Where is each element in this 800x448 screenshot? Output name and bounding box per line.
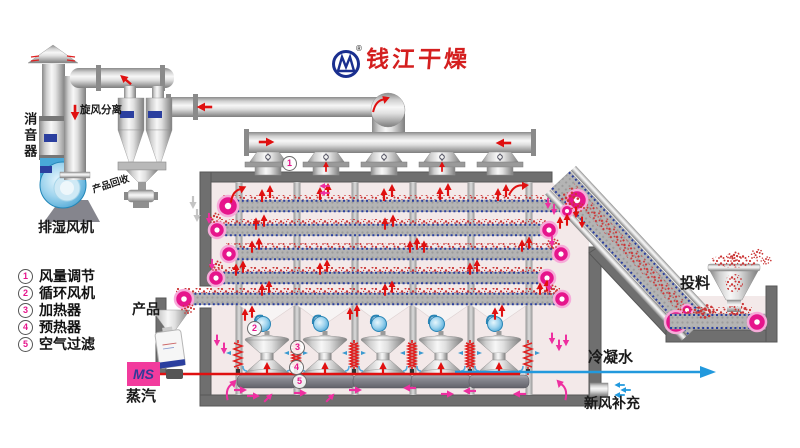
circulation-units	[226, 305, 540, 388]
registered-trademark: ®	[356, 45, 362, 54]
fresh-air-label: 新风补充	[584, 397, 640, 412]
brand-logo-icon	[334, 52, 359, 77]
fresh-air-stub	[590, 383, 608, 396]
brand-logo-text: 钱江干燥	[365, 47, 471, 72]
steam-valve	[166, 369, 183, 379]
belt-4	[214, 267, 548, 284]
condensate-label: 冷凝水	[588, 350, 633, 367]
belt-5	[176, 288, 564, 305]
legend-item-heater: 3 加热器	[18, 302, 95, 318]
conveyor-belts	[175, 194, 588, 308]
silencer-label: 消音器	[22, 112, 36, 160]
legend-num-5: 5	[18, 337, 33, 352]
callout-4: 4	[289, 360, 304, 375]
callout-1: 1	[282, 156, 297, 171]
legend-num-3: 3	[18, 303, 33, 318]
legend-label-5: 空气过滤	[39, 334, 95, 354]
legend-item-air-volume: 1 风量调节	[18, 268, 95, 284]
legend-num-4: 4	[18, 320, 33, 335]
legend-item-preheater: 4 预热器	[18, 319, 95, 335]
callout-2: 2	[247, 321, 262, 336]
legend-num-1: 1	[18, 269, 33, 284]
steam-source-box: MS	[127, 362, 160, 386]
dryer-inlet-pipe	[166, 93, 405, 134]
belt-dryer-schematic: 消音器 排湿风机 旋风分离 产品回收 ® 钱江干燥 投料 产品 MS 蒸汽 冷凝…	[0, 0, 800, 448]
exhaust-fan-label: 排湿风机	[38, 221, 94, 236]
legend-item-air-filter: 5 空气过滤	[18, 336, 95, 352]
cyclone-separator	[118, 86, 172, 208]
cyclone-label: 旋风分离	[80, 105, 122, 117]
steam-label: 蒸汽	[126, 389, 156, 406]
product-recovery-valve	[124, 182, 158, 208]
legend-item-circulation-fan: 2 循环风机	[18, 285, 95, 301]
product-label: 产品	[132, 303, 160, 318]
callout-5: 5	[292, 374, 307, 389]
legend: 1 风量调节 2 循环风机 3 加热器 4 预热器 5 空气过滤	[18, 268, 95, 353]
legend-num-2: 2	[18, 286, 33, 301]
belt-3	[226, 243, 562, 260]
feeding-label: 投料	[680, 276, 710, 293]
belt-1	[222, 195, 576, 212]
callout-3: 3	[290, 340, 305, 355]
